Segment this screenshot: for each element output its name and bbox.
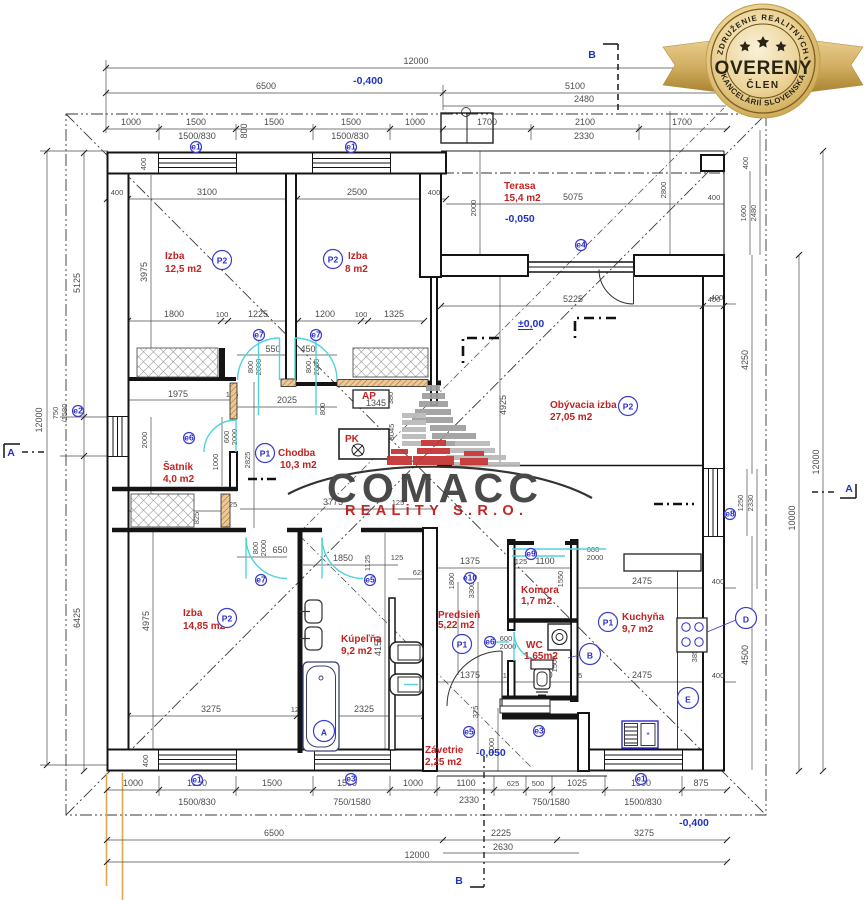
svg-text:P2: P2: [222, 614, 233, 624]
svg-text:e3: e3: [534, 726, 544, 736]
svg-text:Šatník: Šatník: [163, 460, 193, 473]
svg-text:P2: P2: [217, 256, 228, 266]
svg-text:3275: 3275: [201, 704, 221, 714]
svg-text:B: B: [587, 651, 593, 661]
svg-text:1500/830: 1500/830: [178, 797, 216, 807]
svg-text:2000: 2000: [259, 540, 268, 557]
svg-text:Kuchyňa: Kuchyňa: [622, 612, 665, 623]
svg-text:1500/830: 1500/830: [178, 131, 216, 141]
svg-text:1500: 1500: [262, 778, 282, 788]
svg-text:12000: 12000: [403, 56, 428, 66]
svg-text:3275: 3275: [634, 828, 654, 838]
svg-text:2000: 2000: [140, 432, 149, 449]
svg-text:1100: 1100: [535, 556, 554, 566]
svg-text:1800: 1800: [164, 309, 184, 319]
svg-text:5100: 5100: [565, 81, 585, 91]
svg-text:2800: 2800: [659, 182, 668, 199]
svg-text:4975: 4975: [141, 611, 151, 631]
svg-text:E: E: [685, 695, 691, 705]
svg-text:B: B: [588, 49, 596, 61]
svg-text:1375: 1375: [460, 670, 480, 680]
svg-text:A: A: [7, 447, 15, 459]
svg-text:1345: 1345: [366, 398, 386, 408]
svg-text:PK: PK: [345, 434, 360, 445]
svg-text:400: 400: [428, 188, 441, 197]
svg-text:400: 400: [712, 577, 725, 586]
svg-text:-0,400: -0,400: [353, 75, 383, 87]
svg-text:1700: 1700: [477, 117, 497, 127]
svg-text:2000: 2000: [230, 429, 239, 446]
svg-text:2480: 2480: [749, 205, 758, 222]
svg-text:2475: 2475: [632, 576, 652, 586]
svg-text:400: 400: [712, 671, 725, 680]
svg-text:1000: 1000: [403, 778, 423, 788]
svg-text:125: 125: [391, 553, 404, 562]
svg-text:-0,050: -0,050: [476, 747, 506, 759]
svg-text:1500/830: 1500/830: [331, 131, 369, 141]
svg-text:1975: 1975: [168, 389, 188, 399]
svg-text:P1: P1: [457, 640, 468, 650]
svg-text:Izba: Izba: [165, 251, 185, 262]
svg-text:B: B: [455, 875, 463, 887]
svg-text:2475: 2475: [632, 670, 652, 680]
svg-text:2330: 2330: [574, 131, 594, 141]
svg-text:750/1580: 750/1580: [532, 797, 570, 807]
svg-text:Izba: Izba: [183, 608, 203, 619]
svg-text:2000: 2000: [587, 553, 604, 562]
svg-text:e5: e5: [464, 727, 474, 737]
svg-text:±0,00: ±0,00: [518, 318, 544, 330]
svg-text:1,7 m2: 1,7 m2: [521, 596, 553, 607]
svg-text:P2: P2: [623, 402, 634, 412]
svg-text:Terasa: Terasa: [504, 181, 536, 192]
svg-text:e10: e10: [463, 573, 477, 583]
svg-text:Komora: Komora: [521, 585, 559, 596]
svg-text:4250: 4250: [740, 350, 750, 370]
svg-text:2480: 2480: [574, 94, 594, 104]
svg-text:1125: 1125: [363, 555, 372, 571]
svg-text:100: 100: [216, 310, 229, 319]
svg-text:2100: 2100: [575, 117, 595, 127]
svg-text:3975: 3975: [139, 262, 149, 282]
svg-text:P1: P1: [603, 618, 614, 628]
svg-text:Izba: Izba: [348, 251, 368, 262]
svg-text:1500: 1500: [186, 117, 206, 127]
svg-text:12000: 12000: [34, 407, 44, 432]
svg-text:3100: 3100: [197, 187, 217, 197]
svg-text:400: 400: [708, 193, 721, 202]
svg-text:12000: 12000: [404, 850, 429, 860]
svg-text:e1: e1: [191, 142, 201, 152]
svg-text:e4: e4: [576, 240, 586, 250]
svg-text:Závetrie: Závetrie: [425, 745, 464, 756]
svg-text:10,3 m2: 10,3 m2: [280, 460, 317, 471]
svg-text:6425: 6425: [72, 608, 82, 628]
svg-text:1250: 1250: [736, 495, 745, 512]
svg-text:750: 750: [51, 407, 60, 420]
svg-text:500: 500: [532, 779, 545, 788]
svg-text:400: 400: [741, 157, 750, 170]
svg-text:e9: e9: [526, 549, 536, 559]
svg-text:550: 550: [265, 344, 280, 354]
svg-text:4925: 4925: [498, 395, 508, 415]
svg-text:e6: e6: [184, 433, 194, 443]
svg-text:2000: 2000: [469, 200, 478, 217]
svg-text:400: 400: [139, 158, 148, 171]
svg-text:e1: e1: [192, 775, 202, 785]
svg-text:e7: e7: [256, 575, 266, 585]
svg-text:2630: 2630: [493, 842, 513, 852]
svg-text:375: 375: [471, 706, 480, 719]
svg-text:400: 400: [111, 188, 124, 197]
svg-text:1700: 1700: [672, 117, 692, 127]
svg-text:Kúpeľňa: Kúpeľňa: [341, 634, 382, 645]
svg-text:1000: 1000: [123, 778, 143, 788]
svg-text:Chodba: Chodba: [278, 448, 316, 459]
svg-text:P2: P2: [328, 255, 339, 265]
svg-text:8 m2: 8 m2: [345, 264, 368, 275]
svg-text:1000: 1000: [405, 117, 425, 127]
svg-text:750/1580: 750/1580: [333, 797, 371, 807]
svg-text:6500: 6500: [256, 81, 276, 91]
svg-text:9,7 m2: 9,7 m2: [622, 624, 654, 635]
svg-text:e3: e3: [346, 774, 356, 784]
svg-text:e1: e1: [346, 142, 356, 152]
svg-text:-0,050: -0,050: [505, 213, 535, 225]
svg-text:1200: 1200: [315, 309, 335, 319]
svg-text:100: 100: [355, 310, 368, 319]
svg-text:27,05 m2: 27,05 m2: [550, 412, 593, 423]
svg-text:1500: 1500: [341, 117, 361, 127]
svg-text:1025: 1025: [567, 778, 587, 788]
svg-text:2330: 2330: [459, 795, 479, 805]
svg-text:P1: P1: [260, 449, 271, 459]
svg-text:15,4 m2: 15,4 m2: [504, 193, 541, 204]
svg-text:e5: e5: [365, 575, 375, 585]
svg-text:450: 450: [300, 344, 315, 354]
svg-text:2325: 2325: [354, 704, 374, 714]
svg-text:6500: 6500: [264, 828, 284, 838]
svg-text:2330: 2330: [746, 495, 755, 512]
svg-text:2,25 m2: 2,25 m2: [425, 757, 462, 768]
svg-text:WC: WC: [526, 640, 543, 651]
svg-text:e6: e6: [485, 637, 495, 647]
svg-text:A: A: [845, 483, 853, 495]
svg-text:9,2 m2: 9,2 m2: [341, 646, 373, 657]
svg-text:D: D: [743, 615, 749, 625]
svg-text:650: 650: [272, 545, 287, 555]
svg-text:e2: e2: [73, 406, 83, 416]
svg-text:1500: 1500: [264, 117, 284, 127]
svg-text:1600: 1600: [739, 205, 748, 222]
svg-text:5075: 5075: [563, 192, 583, 202]
svg-text:4,0 m2: 4,0 m2: [163, 474, 195, 485]
svg-text:e7: e7: [311, 330, 321, 340]
svg-text:400: 400: [141, 755, 150, 768]
svg-text:ČLEN: ČLEN: [746, 78, 779, 91]
svg-text:1225: 1225: [248, 309, 268, 319]
svg-text:5,22 m2: 5,22 m2: [438, 620, 475, 631]
svg-text:Obývacia izba: Obývacia izba: [550, 400, 617, 411]
svg-text:800: 800: [239, 123, 249, 138]
svg-text:2225: 2225: [491, 828, 511, 838]
svg-text:5125: 5125: [72, 273, 82, 293]
svg-text:1375: 1375: [460, 556, 480, 566]
svg-text:1000: 1000: [211, 454, 220, 471]
svg-text:1100: 1100: [456, 778, 475, 788]
svg-text:OVERENÝ: OVERENÝ: [715, 57, 812, 79]
svg-text:2825: 2825: [243, 452, 252, 469]
svg-text:10000: 10000: [787, 505, 797, 530]
svg-text:1500/830: 1500/830: [624, 797, 662, 807]
svg-text:-0,400: -0,400: [679, 817, 709, 829]
svg-text:A: A: [321, 728, 327, 738]
svg-text:875: 875: [693, 778, 708, 788]
svg-text:1,65m2: 1,65m2: [524, 651, 558, 662]
svg-text:5225: 5225: [563, 294, 583, 304]
svg-text:1000: 1000: [121, 117, 141, 127]
svg-text:1325: 1325: [384, 309, 404, 319]
svg-text:12,5 m2: 12,5 m2: [165, 264, 202, 275]
svg-text:800: 800: [318, 403, 327, 416]
svg-text:625: 625: [507, 779, 520, 788]
svg-text:400: 400: [711, 293, 724, 302]
svg-text:*: *: [646, 731, 649, 740]
svg-text:2025: 2025: [277, 395, 297, 405]
svg-text:1800: 1800: [447, 573, 456, 590]
svg-text:e7: e7: [254, 330, 264, 340]
svg-text:e8: e8: [725, 509, 735, 519]
svg-text:3300: 3300: [467, 582, 476, 599]
svg-text:1850: 1850: [333, 553, 353, 563]
svg-text:/1580: /1580: [60, 404, 69, 423]
svg-text:12000: 12000: [811, 449, 821, 474]
svg-text:e1: e1: [636, 774, 646, 784]
svg-text:2500: 2500: [347, 187, 367, 197]
svg-text:4500: 4500: [740, 645, 750, 665]
